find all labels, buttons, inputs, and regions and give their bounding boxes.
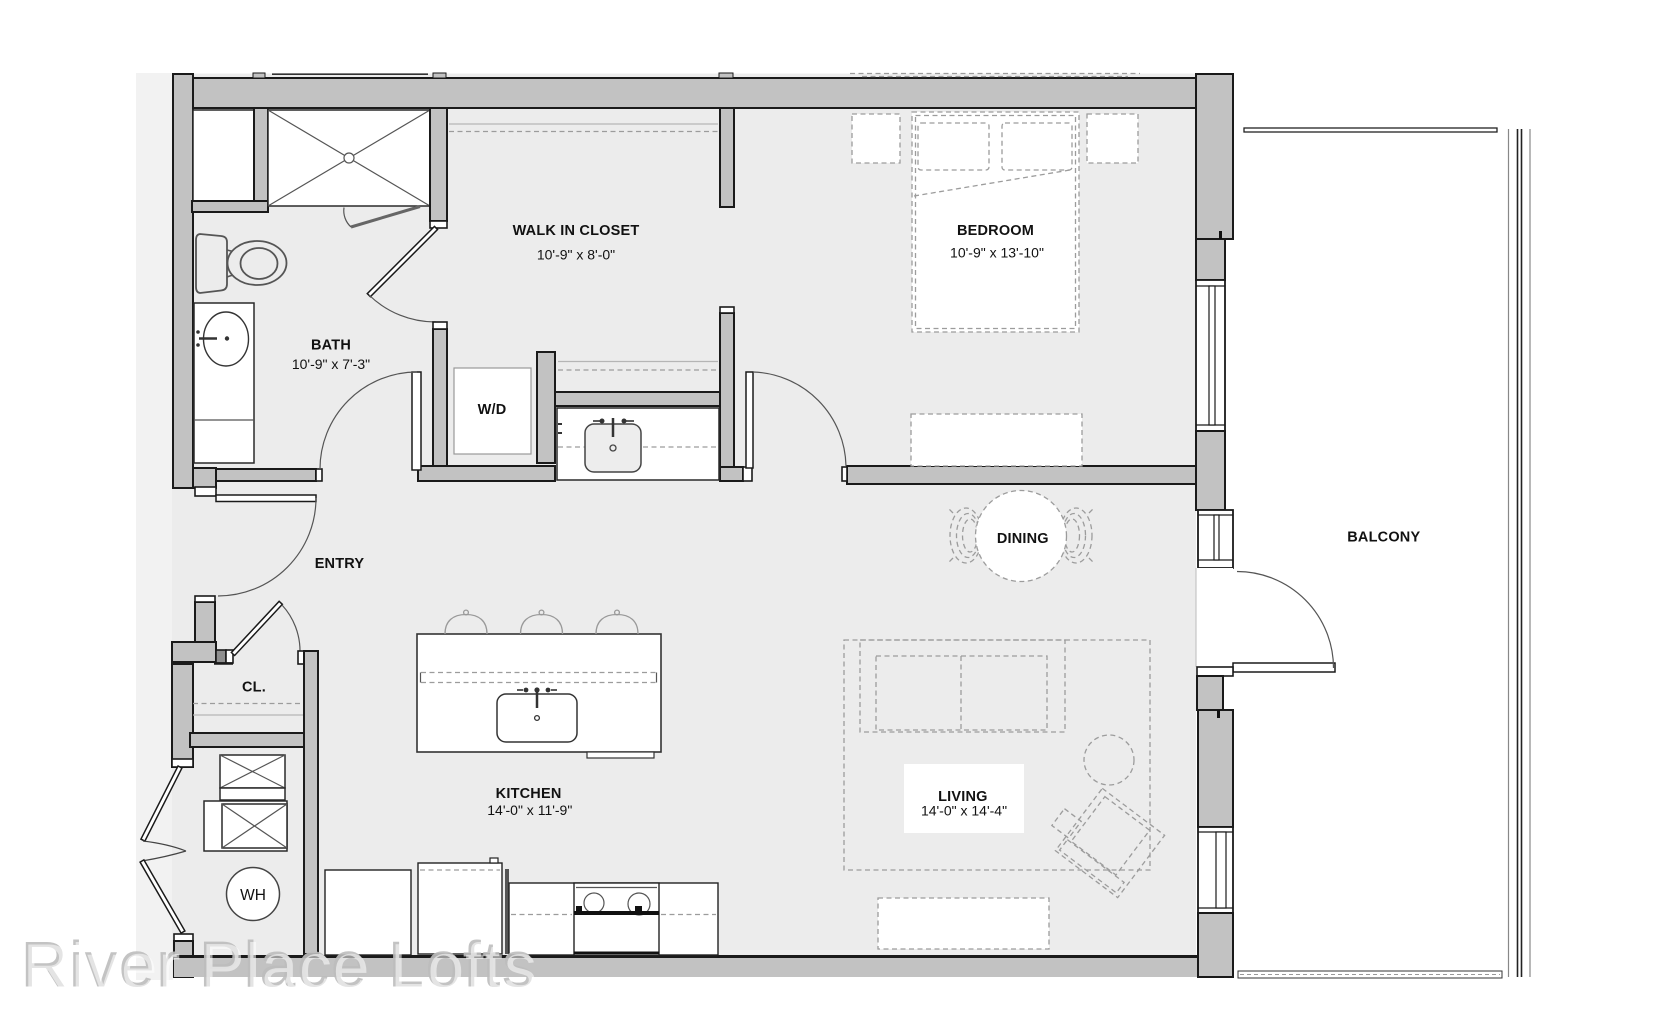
svg-text:WALK IN CLOSET: WALK IN CLOSET: [513, 223, 640, 239]
svg-text:10'-9" x 13'-10": 10'-9" x 13'-10": [950, 245, 1044, 261]
svg-text:ENTRY: ENTRY: [315, 556, 365, 572]
svg-text:River Place Lofts: River Place Lofts: [23, 930, 538, 1003]
svg-text:BATH: BATH: [311, 338, 351, 354]
svg-text:CL.: CL.: [242, 680, 266, 696]
svg-text:10'-9" x 8'-0": 10'-9" x 8'-0": [537, 247, 615, 263]
svg-text:WH: WH: [240, 887, 266, 904]
svg-text:BEDROOM: BEDROOM: [957, 223, 1034, 239]
svg-text:W/D: W/D: [478, 402, 507, 418]
svg-text:DINING: DINING: [997, 531, 1049, 547]
svg-text:14'-0" x 11'-9": 14'-0" x 11'-9": [487, 802, 572, 818]
svg-text:BALCONY: BALCONY: [1347, 530, 1420, 546]
svg-text:10'-9" x 7'-3": 10'-9" x 7'-3": [292, 356, 370, 372]
svg-text:KITCHEN: KITCHEN: [496, 786, 562, 802]
svg-text:14'-0" x 14'-4": 14'-0" x 14'-4": [921, 803, 1007, 819]
